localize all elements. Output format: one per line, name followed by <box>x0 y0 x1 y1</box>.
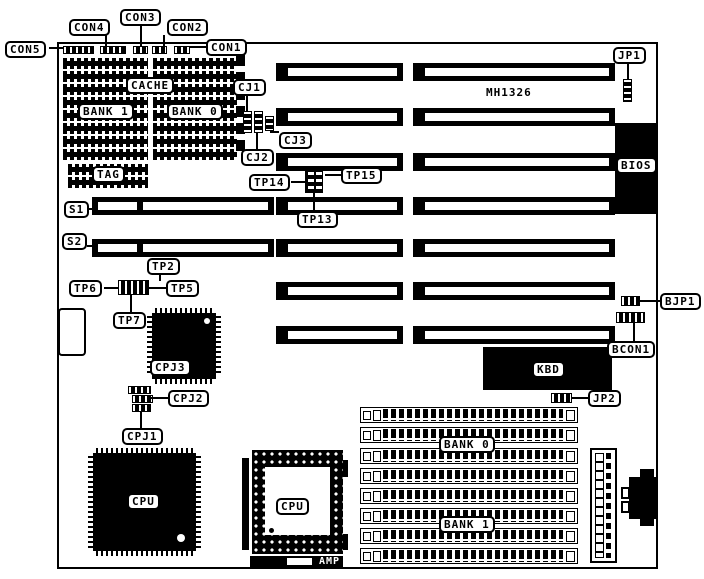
pointer-line-tp6 <box>104 287 118 289</box>
label-cpu-qfp: CPU <box>127 493 160 510</box>
label-con2: CON2 <box>167 19 208 36</box>
label-con3: CON3 <box>120 9 161 26</box>
simm-socket <box>360 548 578 564</box>
label-tp13: TP13 <box>297 211 338 228</box>
battery-outline <box>58 308 86 356</box>
pointer-line-con1 <box>190 46 206 48</box>
isa-slot-segment <box>413 197 615 215</box>
pointer-line-cj2 <box>256 133 258 149</box>
label-cpj2: CPJ2 <box>168 390 209 407</box>
jumper-jp2 <box>551 393 572 403</box>
pointer-line-con4 <box>105 35 107 46</box>
label-jp1: JP1 <box>613 47 646 64</box>
connector-con4 <box>100 46 126 54</box>
pointer-line-con2 <box>163 35 165 46</box>
isa-slot-segment <box>413 282 615 300</box>
vlb-slot-s1 <box>92 197 274 215</box>
isa-slot-segment <box>276 282 403 300</box>
cache-chip-row <box>63 149 148 160</box>
label-con5: CON5 <box>5 41 46 58</box>
label-cj3: CJ3 <box>279 132 312 149</box>
label-cpj3: CPJ3 <box>150 359 191 376</box>
label-simm-bank1: BANK 1 <box>439 516 495 533</box>
pin-header-strip <box>236 55 245 153</box>
pga-pin1-dot <box>269 528 274 533</box>
jumper-cj1 <box>243 111 252 133</box>
label-simm-bank0: BANK 0 <box>439 436 495 453</box>
label-con4: CON4 <box>69 19 110 36</box>
vlb-slot-s2 <box>92 239 274 257</box>
isa-slot-segment <box>276 108 403 126</box>
label-tp2: TP2 <box>147 258 180 275</box>
pointer-line-con3 <box>140 25 142 46</box>
keyboard-din-tab <box>640 469 654 478</box>
motherboard-diagram: AMP CON5 CON4 CON3 CON2 CON1 CACHE BANK … <box>0 0 704 579</box>
label-tp7: TP7 <box>113 312 146 329</box>
label-s1: S1 <box>64 201 89 218</box>
pointer-line-cj3 <box>270 131 279 133</box>
pointer-line-con5 <box>49 47 63 49</box>
cache-chip-row <box>63 123 148 134</box>
isa-slot-segment <box>276 326 403 344</box>
isa-slot-segment <box>413 108 615 126</box>
simm-socket <box>360 407 578 423</box>
pointer-line-jp2 <box>572 397 588 399</box>
simm-socket <box>360 468 578 484</box>
isa-slot-segment <box>413 63 615 81</box>
amp-socket-bar: AMP <box>250 556 343 568</box>
label-cpu-pga: CPU <box>276 498 309 515</box>
pointer-line-bjp1 <box>639 300 660 302</box>
label-tp6: TP6 <box>69 280 102 297</box>
label-jp2: JP2 <box>588 390 621 407</box>
label-tp15: TP15 <box>341 167 382 184</box>
board-model-text: MH1326 <box>486 86 532 99</box>
keyboard-din-connector <box>629 477 658 519</box>
jumper-cpj2-a <box>128 386 151 394</box>
jumper-tp2-5-6-7-block <box>118 280 149 295</box>
label-cache-bank0: BANK 0 <box>167 103 223 120</box>
cache-chip-row <box>153 149 237 160</box>
pointer-line-bcon1 <box>633 323 635 341</box>
jumper-tp13-14-15-block <box>305 171 323 193</box>
jumper-bcon1 <box>616 312 645 323</box>
label-cache-bank1: BANK 1 <box>78 103 134 120</box>
label-tag: TAG <box>92 166 125 183</box>
label-kbd: KBD <box>532 361 565 378</box>
cache-chip-row <box>63 136 148 147</box>
pointer-line-tp5 <box>149 287 166 289</box>
din-pin-block <box>621 501 630 513</box>
jumper-cj3 <box>265 116 274 131</box>
keyboard-din-tab <box>640 518 654 526</box>
isa-slot-segment <box>276 63 403 81</box>
label-bios: BIOS <box>616 157 657 174</box>
connector-con5 <box>63 46 94 54</box>
pointer-line-cpj2 <box>150 397 168 399</box>
pointer-line-tp15 <box>325 174 341 176</box>
label-cpj1: CPJ1 <box>122 428 163 445</box>
pga-side-bar <box>242 458 249 550</box>
pointer-line-jp1 <box>627 63 629 80</box>
amp-label-text: AMP <box>319 556 340 567</box>
cache-chip-row <box>153 123 237 134</box>
cache-chip-row <box>153 136 237 147</box>
jumper-cj2 <box>254 111 263 133</box>
pointer-line-tp13 <box>313 193 315 211</box>
isa-slot-segment <box>413 153 615 171</box>
label-con1: CON1 <box>206 39 247 56</box>
cache-chip-row <box>153 58 237 69</box>
jumper-cpj1 <box>132 404 151 412</box>
isa-slot-segment <box>276 239 403 257</box>
connector-con2 <box>152 46 167 54</box>
jumper-jp1 <box>623 79 632 102</box>
pointer-line-tp14 <box>291 181 306 183</box>
connector-con3 <box>133 46 148 54</box>
pointer-line-cpj1 <box>140 412 142 428</box>
din-pin-block <box>621 487 630 499</box>
label-tp14: TP14 <box>249 174 290 191</box>
label-cache: CACHE <box>126 77 174 94</box>
label-bjp1: BJP1 <box>660 293 701 310</box>
power-connector <box>590 448 617 563</box>
amp-bar-slot <box>287 558 312 565</box>
label-tp5: TP5 <box>166 280 199 297</box>
connector-con1 <box>174 46 190 54</box>
label-bcon1: BCON1 <box>607 341 655 358</box>
pointer-line-tp7 <box>130 295 132 312</box>
pointer-line-s2 <box>87 245 92 247</box>
isa-slot-segment <box>276 153 403 171</box>
pga-tab <box>343 460 348 477</box>
isa-slot-segment <box>276 197 403 215</box>
isa-slot-segment <box>413 326 615 344</box>
pointer-line-s1 <box>89 208 94 210</box>
simm-socket <box>360 488 578 504</box>
label-cj2: CJ2 <box>241 149 274 166</box>
cache-chip-row <box>63 58 148 69</box>
jumper-bjp1 <box>621 296 640 306</box>
label-s2: S2 <box>62 233 87 250</box>
label-cj1: CJ1 <box>233 79 266 96</box>
isa-slot-segment <box>413 239 615 257</box>
pga-tab <box>343 534 348 550</box>
